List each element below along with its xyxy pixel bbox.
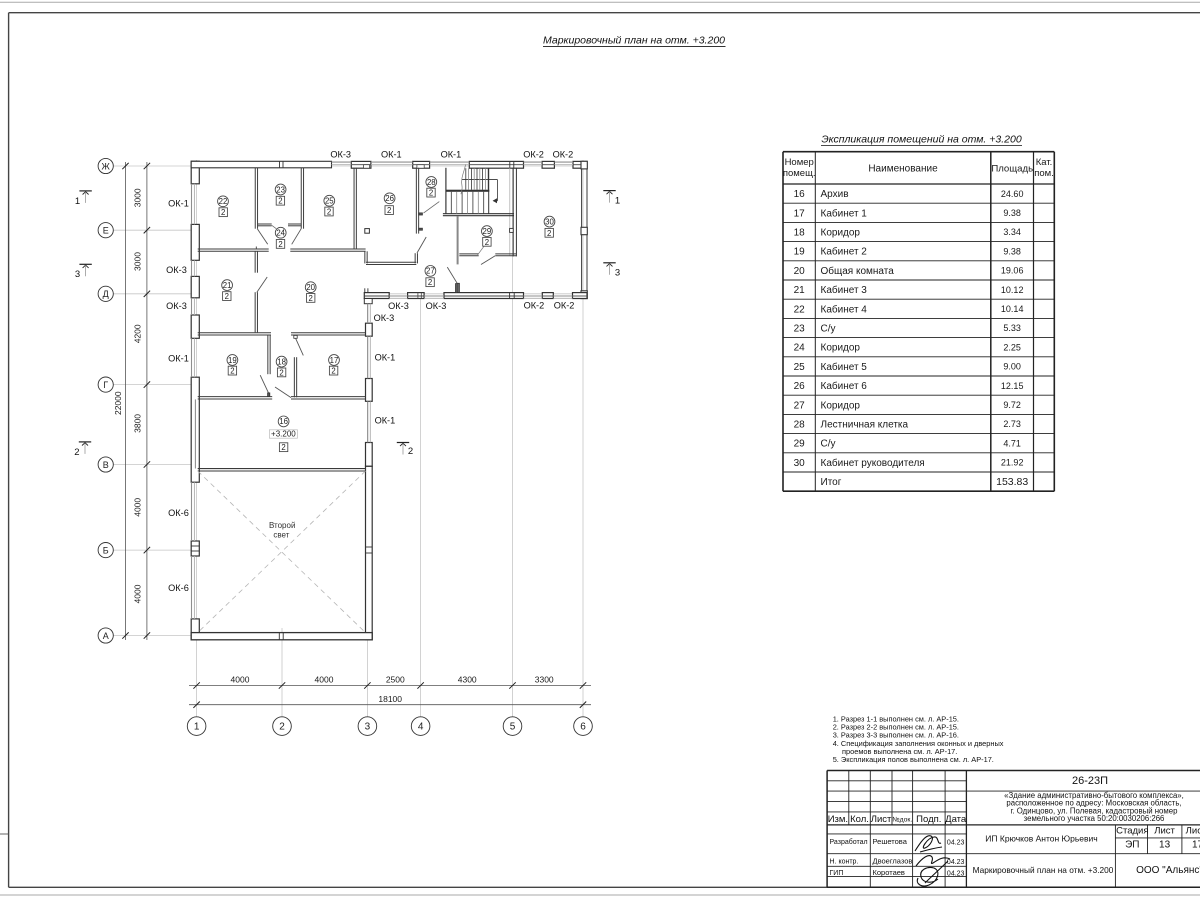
svg-text:Разработал: Разработал (830, 838, 868, 846)
svg-text:1: 1 (194, 722, 200, 733)
svg-text:17: 17 (794, 208, 806, 219)
svg-text:Экспликация помещений на отм.: Экспликация помещений на отм. +3.200 (821, 134, 1021, 146)
svg-text:2: 2 (74, 447, 79, 458)
svg-text:ОК-6: ОК-6 (168, 508, 189, 518)
svg-text:3000: 3000 (132, 188, 142, 207)
svg-text:Лестничная клетка: Лестничная клетка (821, 420, 909, 431)
svg-text:ОК-2: ОК-2 (523, 149, 544, 159)
svg-text:Лист: Лист (871, 814, 892, 825)
svg-text:26: 26 (385, 194, 394, 203)
svg-text:18: 18 (794, 228, 806, 239)
svg-text:Двоеглазов: Двоеглазов (873, 857, 913, 866)
svg-text:Кабинет 4: Кабинет 4 (821, 303, 868, 315)
svg-text:ОК-3: ОК-3 (374, 313, 395, 323)
svg-text:№док.: №док. (892, 816, 912, 823)
svg-text:ГИП: ГИП (830, 870, 844, 877)
svg-text:ОК-2: ОК-2 (553, 149, 574, 159)
svg-text:Е: Е (103, 226, 109, 236)
svg-text:3: 3 (615, 268, 620, 279)
svg-text:Изм.: Изм. (828, 814, 848, 825)
svg-text:Кат.: Кат. (1036, 157, 1053, 168)
svg-text:В: В (103, 460, 109, 470)
svg-text:16: 16 (794, 189, 806, 200)
svg-text:3300: 3300 (535, 675, 554, 685)
svg-text:9.72: 9.72 (1003, 400, 1021, 410)
svg-text:153.83: 153.83 (996, 476, 1028, 488)
svg-text:А: А (103, 631, 109, 641)
svg-text:21: 21 (794, 285, 806, 296)
svg-text:17: 17 (330, 356, 339, 365)
svg-text:Кабинет 1: Кабинет 1 (821, 207, 868, 219)
svg-text:19: 19 (228, 356, 237, 365)
svg-text:2: 2 (331, 367, 335, 376)
svg-text:С/у: С/у (821, 439, 836, 450)
svg-text:10.12: 10.12 (1001, 285, 1024, 295)
svg-text:ОК-1: ОК-1 (381, 149, 402, 159)
svg-text:Г: Г (103, 380, 108, 390)
svg-text:Ж: Ж (102, 161, 111, 171)
svg-text:2: 2 (428, 278, 432, 287)
svg-text:Кабинет 6: Кабинет 6 (821, 380, 868, 392)
svg-text:Площадь: Площадь (991, 164, 1033, 175)
svg-text:ЭП: ЭП (1125, 839, 1139, 850)
svg-text:Итог: Итог (821, 477, 842, 488)
svg-text:19.06: 19.06 (1001, 266, 1024, 276)
svg-text:С/у: С/у (821, 324, 836, 335)
svg-text:Общая комната: Общая комната (821, 265, 895, 277)
svg-text:2: 2 (279, 722, 285, 733)
svg-text:4200: 4200 (132, 324, 142, 343)
svg-text:2: 2 (278, 240, 282, 249)
svg-text:ОК-3: ОК-3 (166, 265, 187, 275)
svg-text:5.33: 5.33 (1003, 323, 1021, 333)
svg-text:Коридор: Коридор (821, 400, 861, 411)
svg-text:9.38: 9.38 (1003, 246, 1021, 256)
svg-text:5. Экспликация полов выполнена: 5. Экспликация полов выполнена см. л. АР… (833, 755, 994, 764)
svg-text:2: 2 (408, 446, 413, 457)
svg-text:2: 2 (281, 443, 285, 452)
svg-text:04.23: 04.23 (947, 839, 965, 846)
svg-text:3: 3 (365, 722, 371, 733)
svg-text:20: 20 (794, 266, 806, 277)
svg-text:4000: 4000 (132, 498, 142, 517)
svg-text:Кабинет 2: Кабинет 2 (821, 246, 868, 258)
svg-text:13: 13 (1159, 839, 1171, 850)
svg-text:4000: 4000 (132, 584, 142, 603)
svg-text:Коридор: Коридор (821, 343, 861, 354)
svg-text:9.38: 9.38 (1003, 208, 1021, 218)
svg-text:1: 1 (75, 196, 80, 207)
svg-text:25: 25 (794, 362, 806, 373)
svg-text:Н. контр.: Н. контр. (830, 859, 859, 866)
svg-text:Второй: Второй (269, 521, 295, 530)
svg-text:22000: 22000 (113, 391, 123, 415)
svg-text:19: 19 (794, 247, 806, 258)
svg-text:23: 23 (276, 185, 285, 194)
svg-text:24: 24 (794, 343, 806, 354)
svg-text:22: 22 (219, 197, 228, 206)
svg-text:+3.200: +3.200 (271, 429, 296, 438)
svg-text:27: 27 (794, 400, 806, 411)
svg-text:16: 16 (279, 417, 288, 426)
svg-text:23: 23 (794, 324, 806, 335)
svg-text:Кабинет 5: Кабинет 5 (821, 361, 868, 373)
svg-text:12.15: 12.15 (1001, 381, 1024, 391)
svg-text:28: 28 (794, 420, 806, 431)
svg-text:ОК-1: ОК-1 (168, 199, 189, 209)
svg-text:6: 6 (580, 722, 586, 733)
svg-text:9.00: 9.00 (1003, 362, 1021, 372)
svg-text:2: 2 (547, 229, 551, 238)
svg-text:04.23: 04.23 (947, 870, 965, 877)
svg-text:Кабинет 3: Кабинет 3 (821, 284, 868, 296)
svg-text:4000: 4000 (315, 675, 334, 685)
svg-text:2: 2 (230, 367, 234, 376)
svg-text:ОК-1: ОК-1 (375, 352, 396, 362)
svg-text:ОК-3: ОК-3 (388, 301, 409, 311)
svg-text:29: 29 (794, 439, 806, 450)
svg-text:26-23П: 26-23П (1072, 775, 1108, 787)
svg-text:Решетова: Решетова (873, 837, 908, 846)
svg-text:Маркировочный план на отм. +3.: Маркировочный план на отм. +3.200 (973, 865, 1114, 875)
svg-text:Б: Б (103, 545, 109, 555)
svg-text:30: 30 (794, 458, 806, 469)
svg-text:земельного участка 50:20:00302: земельного участка 50:20:0030206:266 (1024, 814, 1165, 823)
svg-text:4300: 4300 (458, 675, 477, 685)
svg-text:Коридор: Коридор (821, 228, 861, 239)
svg-text:ОК-2: ОК-2 (524, 301, 545, 311)
svg-text:2: 2 (221, 208, 225, 217)
svg-text:свет: свет (273, 531, 289, 540)
svg-text:Архив: Архив (821, 189, 849, 200)
svg-text:ОК-6: ОК-6 (168, 583, 189, 593)
svg-text:4.71: 4.71 (1003, 438, 1021, 448)
svg-text:4000: 4000 (231, 675, 250, 685)
svg-text:Дата: Дата (945, 814, 967, 825)
svg-text:ИП Крючков Антон Юрьевич: ИП Крючков Антон Юрьевич (985, 834, 1097, 844)
svg-text:ОК-1: ОК-1 (441, 149, 462, 159)
svg-text:Наименование: Наименование (868, 164, 938, 175)
svg-text:пом.: пом. (1034, 168, 1054, 179)
svg-text:3800: 3800 (132, 414, 142, 433)
svg-text:2: 2 (429, 189, 433, 198)
svg-text:2: 2 (309, 294, 313, 303)
svg-text:ОК-2: ОК-2 (554, 301, 575, 311)
svg-text:Маркировочный план на отм. +3.: Маркировочный план на отм. +3.200 (543, 35, 725, 47)
svg-text:Кабинет руководителя: Кабинет руководителя (821, 457, 925, 469)
svg-text:Лист: Лист (1154, 826, 1175, 837)
svg-text:04.23: 04.23 (947, 859, 965, 866)
svg-text:2: 2 (485, 238, 489, 247)
svg-text:2: 2 (278, 197, 282, 206)
svg-text:2: 2 (225, 292, 229, 301)
svg-text:Лист: Лист (1186, 826, 1200, 837)
svg-text:Коротаев: Коротаев (873, 868, 905, 877)
svg-text:20: 20 (306, 283, 315, 292)
svg-text:2: 2 (387, 206, 391, 215)
svg-text:29: 29 (483, 227, 492, 236)
svg-text:21: 21 (223, 281, 232, 290)
svg-text:18: 18 (277, 357, 286, 366)
svg-text:4: 4 (418, 722, 424, 733)
svg-text:1: 1 (615, 196, 620, 207)
svg-text:30: 30 (545, 217, 554, 226)
svg-text:2.25: 2.25 (1003, 342, 1021, 352)
svg-text:ОК-1: ОК-1 (375, 415, 396, 425)
svg-text:ООО "Альянс": ООО "Альянс" (1136, 865, 1200, 876)
svg-text:5: 5 (510, 722, 516, 733)
svg-text:помещ.: помещ. (783, 168, 816, 179)
svg-text:ОК-3: ОК-3 (426, 301, 447, 311)
svg-text:18100: 18100 (378, 694, 402, 704)
svg-text:2: 2 (327, 208, 331, 217)
svg-text:21.92: 21.92 (1001, 458, 1024, 468)
svg-text:10.14: 10.14 (1001, 304, 1024, 314)
svg-text:Стадия: Стадия (1116, 826, 1148, 837)
svg-text:28: 28 (427, 178, 436, 187)
svg-text:2500: 2500 (386, 675, 405, 685)
svg-text:Кол.: Кол. (850, 814, 869, 825)
svg-text:ОК-3: ОК-3 (330, 149, 351, 159)
svg-text:17: 17 (1192, 839, 1200, 850)
svg-text:Номер: Номер (785, 157, 814, 168)
svg-text:2: 2 (279, 368, 283, 377)
svg-text:3.34: 3.34 (1003, 227, 1021, 237)
svg-text:2.73: 2.73 (1003, 419, 1021, 429)
svg-text:ОК-3: ОК-3 (166, 301, 187, 311)
svg-text:3: 3 (75, 269, 80, 280)
svg-text:Подп.: Подп. (916, 814, 941, 825)
svg-text:27: 27 (426, 267, 435, 276)
svg-text:26: 26 (794, 381, 806, 392)
svg-text:24.60: 24.60 (1001, 189, 1024, 199)
svg-text:3000: 3000 (132, 252, 142, 271)
svg-text:24: 24 (276, 229, 285, 238)
svg-text:Д: Д (103, 289, 109, 299)
svg-text:25: 25 (325, 197, 334, 206)
svg-text:ОК-1: ОК-1 (168, 353, 189, 363)
svg-text:22: 22 (794, 304, 806, 315)
